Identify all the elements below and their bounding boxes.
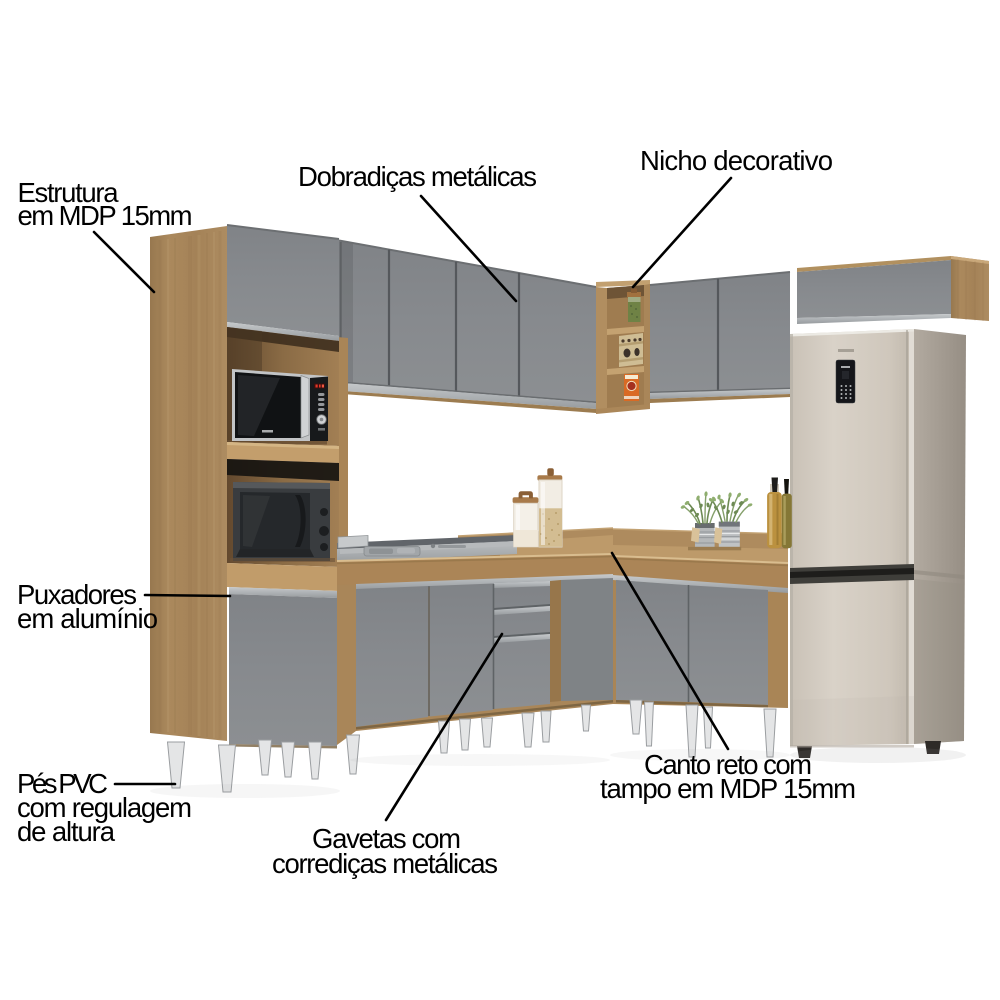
svg-text:Nicho decorativo: Nicho decorativo (640, 145, 833, 176)
svg-text:Dobradiças metálicas: Dobradiças metálicas (298, 161, 537, 192)
svg-text:corrediças metálicas: corrediças metálicas (272, 848, 498, 879)
svg-text:tampo em MDP 15mm: tampo em MDP 15mm (600, 773, 856, 804)
svg-text:em alumínio: em alumínio (17, 603, 158, 634)
svg-text:em MDP 15mm: em MDP 15mm (18, 200, 193, 231)
svg-text:de altura: de altura (17, 816, 116, 847)
